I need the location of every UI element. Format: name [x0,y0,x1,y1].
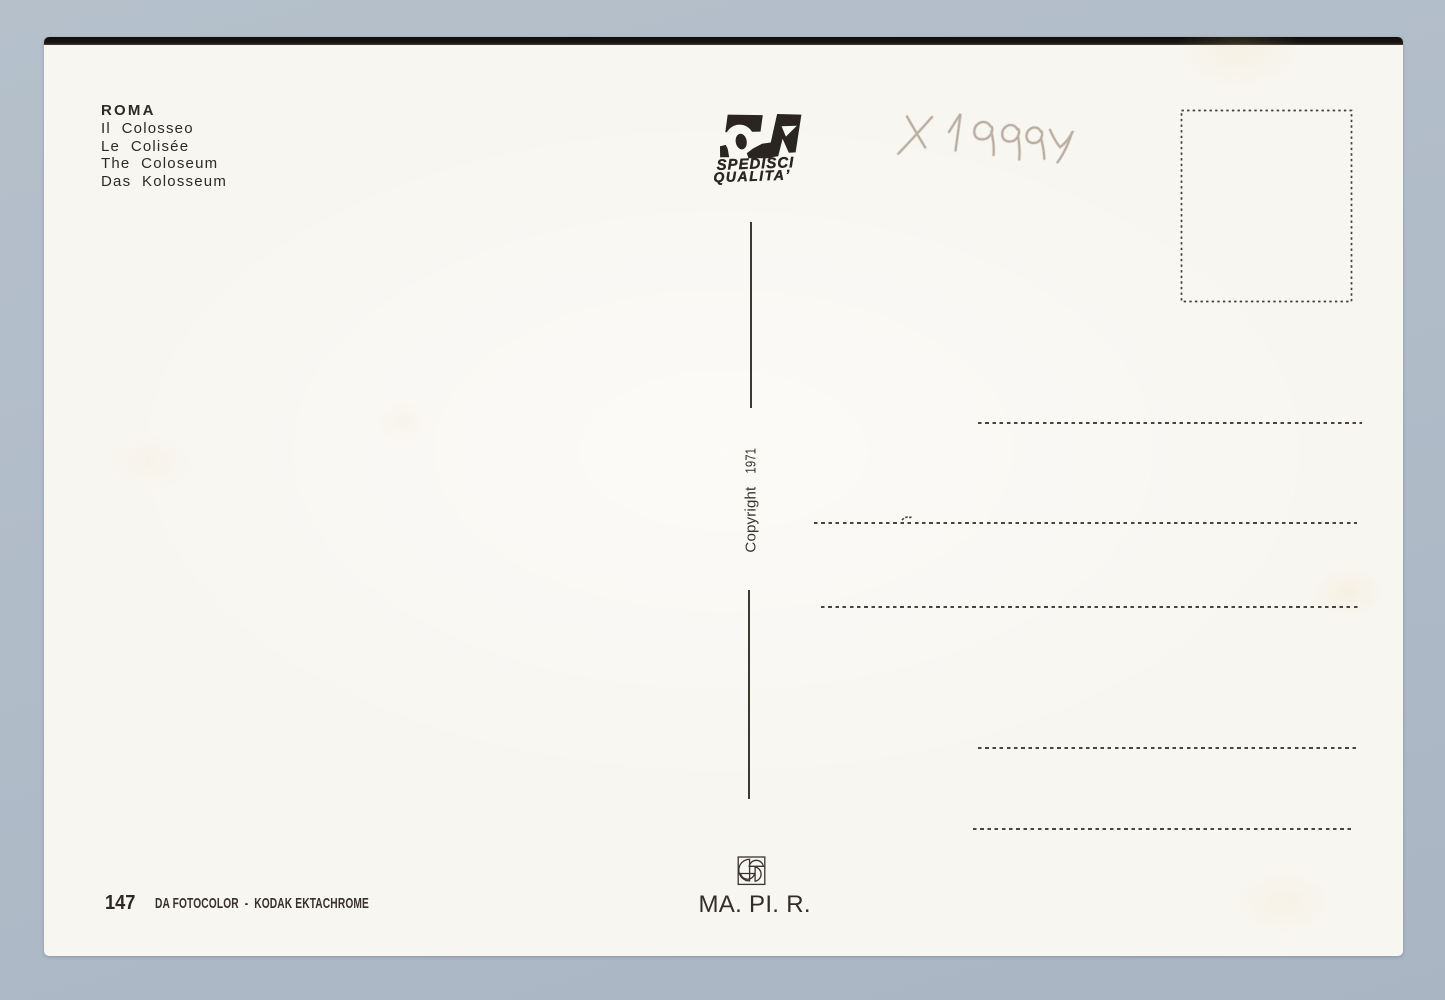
svg-text:QUALITAʼ: QUALITAʼ [713,167,791,186]
